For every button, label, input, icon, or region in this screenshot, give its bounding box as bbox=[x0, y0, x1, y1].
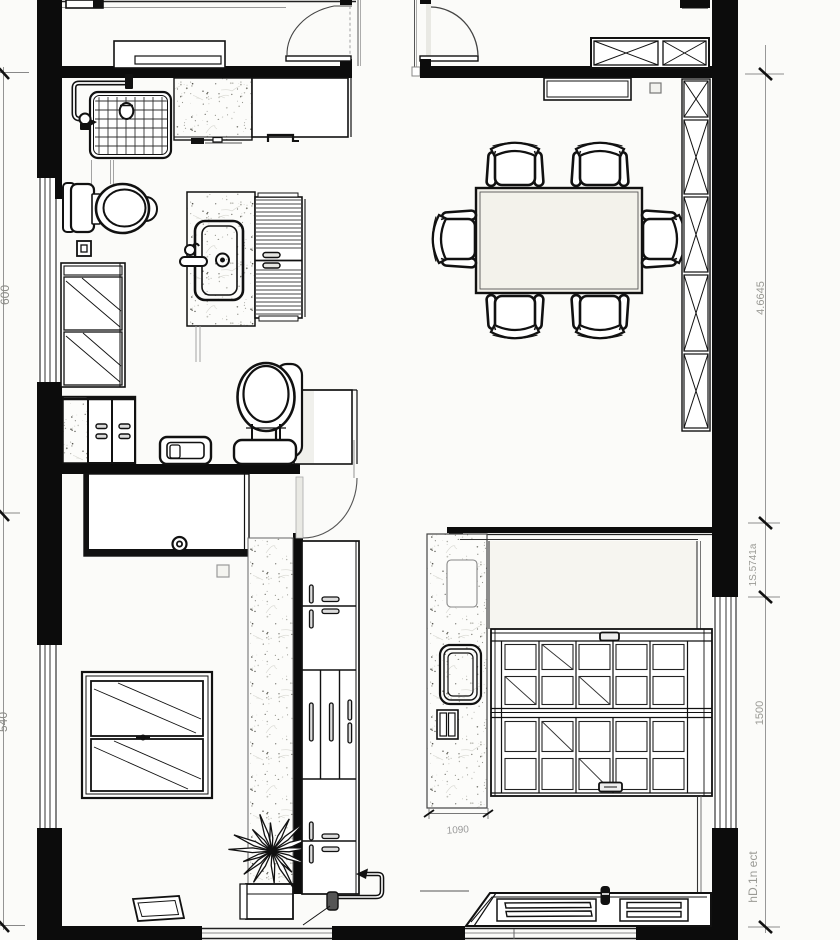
svg-text:600: 600 bbox=[0, 285, 12, 305]
svg-text:4.6645: 4.6645 bbox=[755, 281, 767, 315]
svg-text:hD.1n ect: hD.1n ect bbox=[746, 851, 760, 903]
svg-text:1S.5741a: 1S.5741a bbox=[748, 543, 759, 586]
svg-text:540: 540 bbox=[0, 712, 10, 732]
svg-text:1500: 1500 bbox=[754, 701, 766, 725]
svg-text:1090: 1090 bbox=[446, 824, 469, 837]
